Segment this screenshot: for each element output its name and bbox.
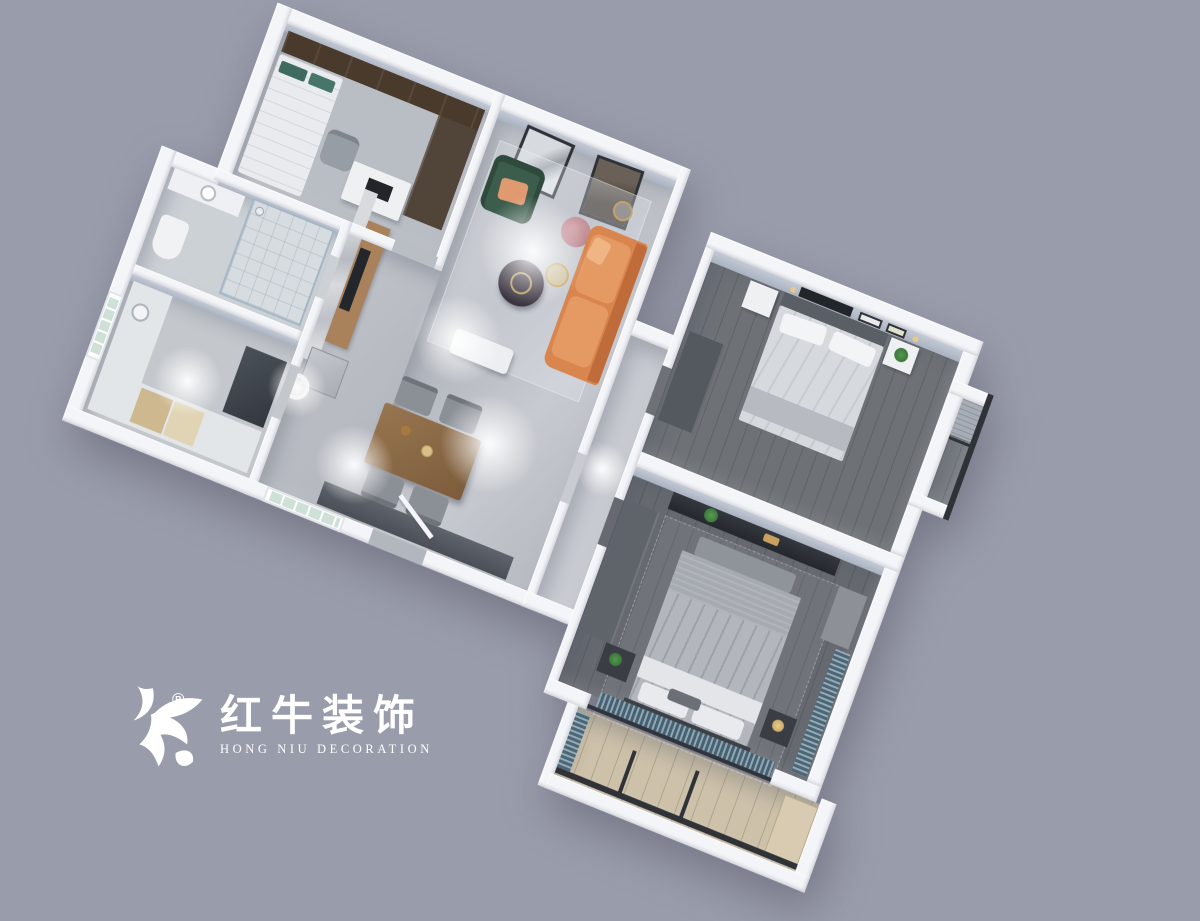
- floor-plan: [0, 0, 1038, 921]
- brand-logo: ® 红牛装饰 HONG NIU DECORATION: [126, 684, 433, 780]
- logo-english-name: HONG NIU DECORATION: [220, 742, 433, 757]
- registered-mark: ®: [172, 690, 185, 710]
- scene: ® 红牛装饰 HONG NIU DECORATION: [0, 0, 1200, 900]
- logo-chinese-name: 红牛装饰: [220, 694, 433, 738]
- bull-logo-icon: ®: [126, 684, 212, 780]
- logo-text: 红牛装饰 HONG NIU DECORATION: [220, 684, 433, 757]
